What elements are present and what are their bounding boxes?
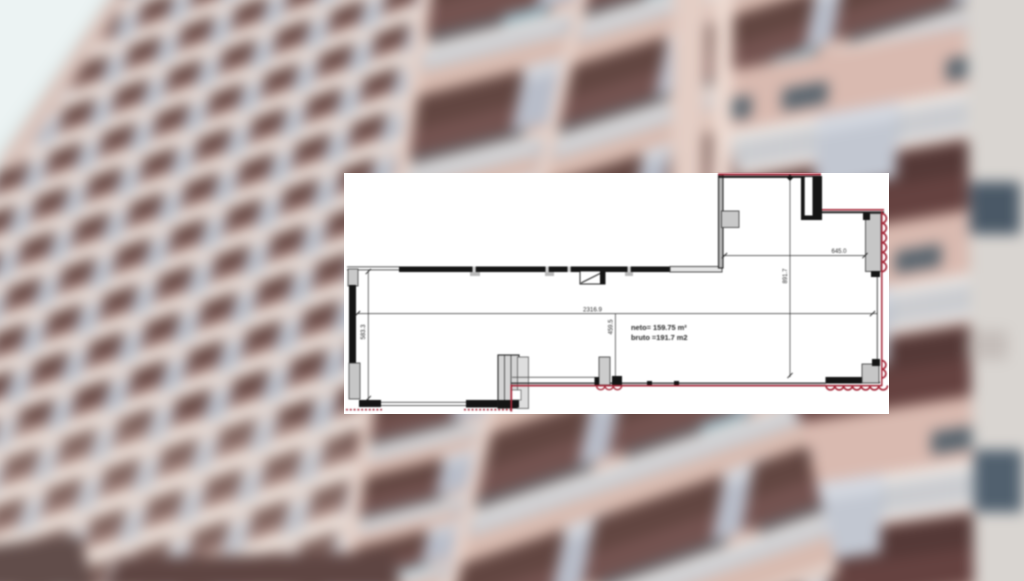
svg-text:2316.9: 2316.9 <box>583 306 602 313</box>
svg-text:645.0: 645.0 <box>831 249 847 255</box>
svg-text:583.3: 583.3 <box>361 324 367 340</box>
svg-text:459.5: 459.5 <box>609 319 615 335</box>
svg-text:bruto =191.7 m2: bruto =191.7 m2 <box>631 333 687 342</box>
svg-text:891.7: 891.7 <box>783 268 789 284</box>
svg-text:neto= 159.75 m²: neto= 159.75 m² <box>631 323 687 332</box>
